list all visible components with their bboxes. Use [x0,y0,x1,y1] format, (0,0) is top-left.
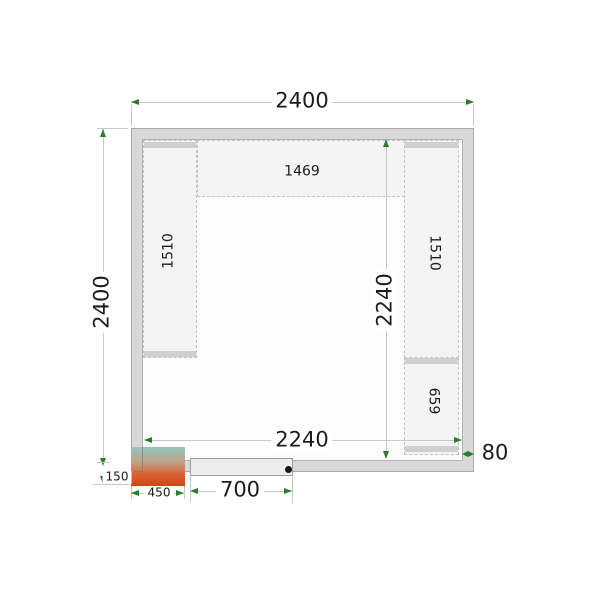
arrow-up-icon [100,129,106,137]
cold-room-floor-plan: 1469 1510 1510 659 2400 2400 2240 2240 8… [0,0,600,600]
shelf-right-lower-length-label: 659 [425,386,440,417]
wall-corner-edge-horizontal [131,471,143,472]
arrow-right-icon [176,490,184,496]
unit-width-label: 450 [145,486,174,499]
arrow-up-icon [383,139,389,147]
shelf-left-length-label: 1510 [161,231,176,271]
shelf-right-top-cap [405,142,458,148]
wall-thickness-label: 80 [478,441,513,464]
arrow-left-icon [131,490,139,496]
door-width-label: 700 [216,478,264,501]
wall-corner-edge-vertical [142,447,143,472]
outer-width-dim-ext-left [131,105,132,126]
arrow-right-icon [454,437,462,443]
unit-depth-dim-ext-bottom [93,484,129,485]
shelf-top-length-label: 1469 [282,164,322,179]
door [190,458,293,476]
arrow-left-icon [190,488,198,494]
shelf-right-upper-length-label: 1510 [426,233,441,273]
arrow-left-icon [131,99,139,105]
unit-depth-dim-ext-top [97,462,110,463]
unit-width-dim-ext-right [184,486,185,499]
shelf-left-bottom-cap [144,351,196,357]
arrow-left-icon [144,437,152,443]
unit-depth-label: 150 [103,470,132,483]
shelf-right-bottom-cap [405,446,458,452]
shelf-left-top-cap [144,142,196,148]
arrow-down-icon [383,451,389,459]
cooling-unit [131,447,185,486]
inner-width-label: 2240 [271,428,332,451]
outer-width-dim-ext-right [473,105,474,126]
inner-depth-label: 2240 [373,269,396,330]
arrow-right-icon [284,488,292,494]
arrow-right-icon [466,99,474,105]
outer-depth-label: 2400 [90,271,113,332]
door-knob [285,466,292,473]
arrow-right-icon [468,451,474,457]
shelf-right-divider-cap [405,358,458,364]
outer-width-label: 2400 [271,89,332,112]
door-width-dim-ext-right [292,477,293,503]
